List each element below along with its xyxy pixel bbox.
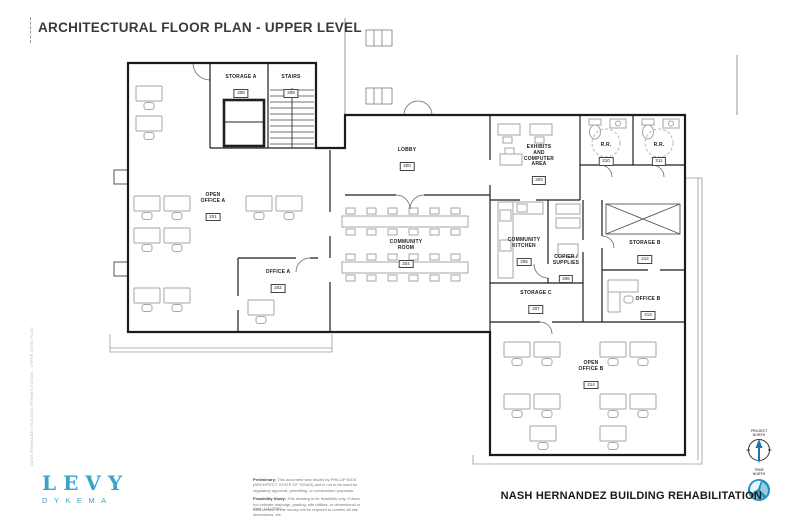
deck-outlines xyxy=(110,178,702,464)
true-north-label: TRUE NORTH xyxy=(742,468,776,476)
room-label-storage-a: STORAGE A 208 xyxy=(225,75,256,99)
project-title: NASH HERNANDEZ BUILDING REHABILITATION xyxy=(501,490,762,502)
room-label-exhibits-area: EXHIBITS AND COMPUTER AREA 203 xyxy=(524,145,554,186)
plot-stamp-vertical: NASH HERNANDEZ BUILDING REHABILITATION -… xyxy=(30,326,34,466)
room-label-office-b: OFFICE B 213 xyxy=(636,297,661,321)
issue-date: Date: 1/31/2020 xyxy=(253,506,281,511)
firm-logo-dykema: DYKEMA xyxy=(42,496,129,505)
drawing-sheet: ARCHITECTURAL FLOOR PLAN - UPPER LEVEL S… xyxy=(0,0,800,518)
room-label-restroom-2: R.R. 211 xyxy=(652,143,666,167)
room-label-community-kitchen: COMMUNITY KITCHEN 205 xyxy=(508,238,541,268)
site-lines xyxy=(345,18,737,115)
room-label-storage-c: STORAGE C 207 xyxy=(520,291,551,315)
room-label-stairs: STAIRS 209 xyxy=(281,75,300,99)
room-label-open-office-b: OPEN OFFICE B 214 xyxy=(579,361,604,391)
firm-logo: LEVY DYKEMA xyxy=(42,473,129,505)
firm-logo-levy: LEVY xyxy=(42,473,129,493)
room-label-copier-supplies: COPIER / SUPPLIES 206 xyxy=(553,255,579,285)
north-arrow-icon xyxy=(746,437,772,463)
room-label-lobby: LOBBY 200 xyxy=(398,148,417,172)
title-revision-tick xyxy=(30,17,31,43)
room-label-storage-b: STORAGE B 212 xyxy=(629,241,660,265)
project-north-label: PROJECT NORTH xyxy=(742,429,776,437)
room-label-open-office-a: OPEN OFFICE A 201 xyxy=(201,193,226,223)
room-label-restroom-1: R.R. 210 xyxy=(599,143,614,167)
room-label-office-a: OFFICE A 202 xyxy=(266,270,291,294)
sheet-title: ARCHITECTURAL FLOOR PLAN - UPPER LEVEL xyxy=(38,20,362,35)
exterior-landings xyxy=(114,170,128,276)
disclaimer-notes: Preliminary: This document was issued by… xyxy=(253,477,361,518)
storage-b-hatch xyxy=(606,204,680,234)
preliminary-note: Preliminary: This document was issued by… xyxy=(253,477,361,493)
room-label-community-room: COMMUNITY ROOM 204 xyxy=(390,240,423,270)
